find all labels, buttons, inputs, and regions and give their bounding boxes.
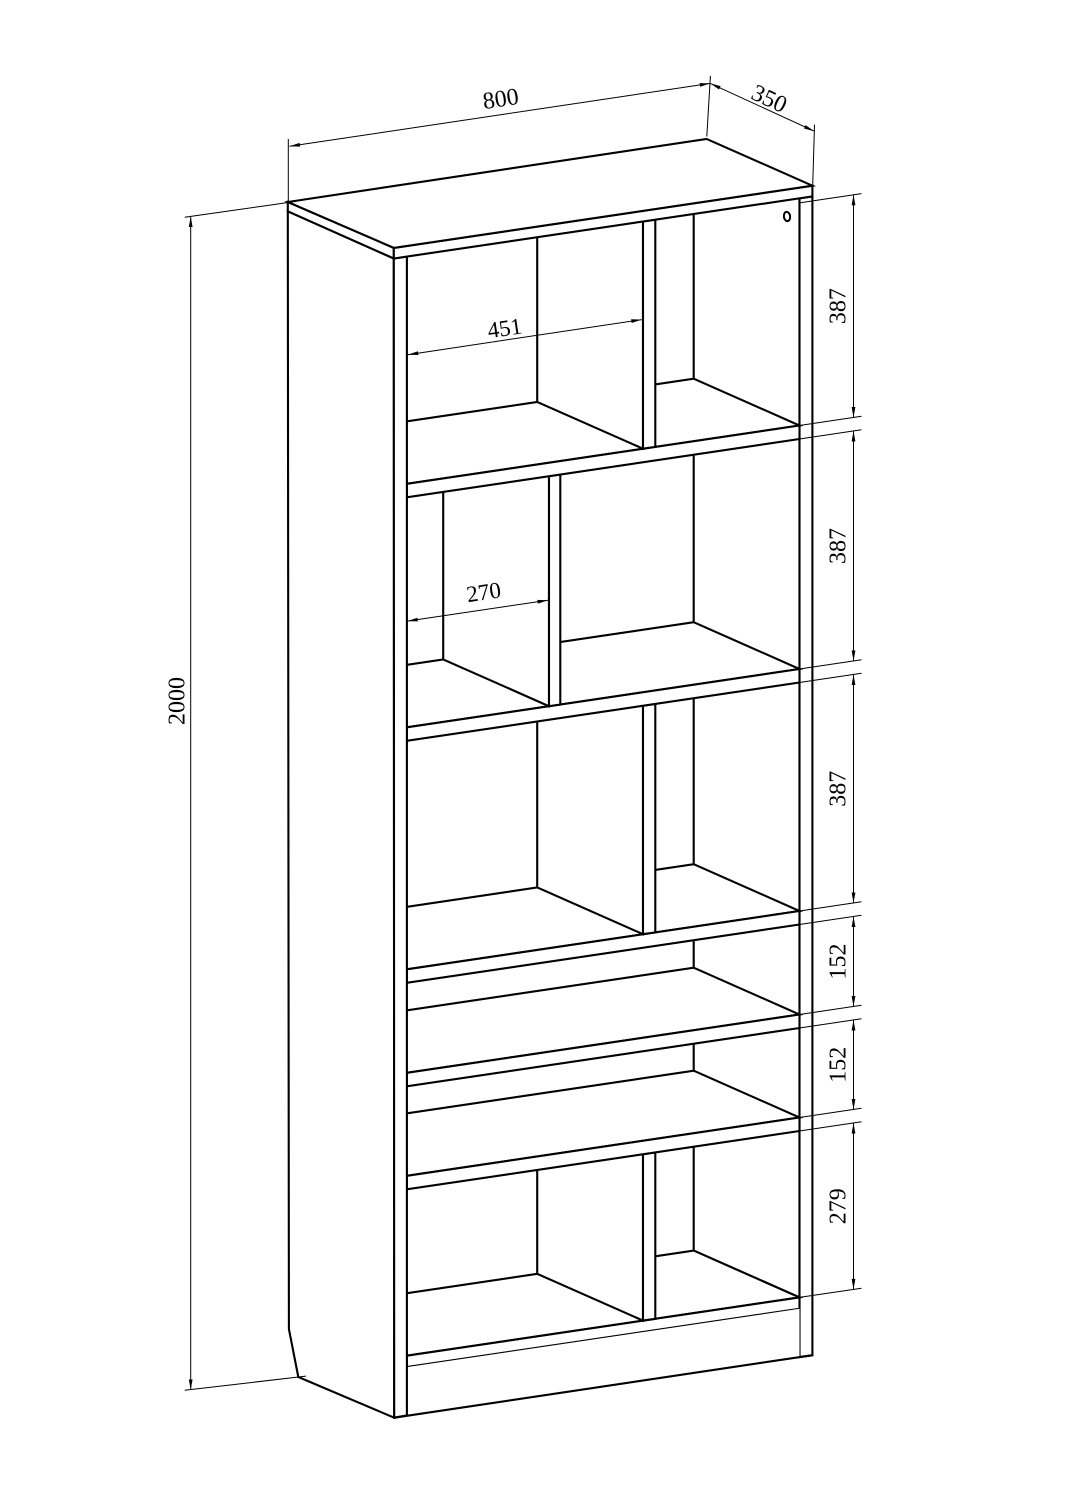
svg-text:451: 451 <box>486 313 524 343</box>
svg-text:270: 270 <box>465 577 503 607</box>
svg-text:800: 800 <box>481 84 520 115</box>
svg-text:2000: 2000 <box>164 677 190 725</box>
svg-text:279: 279 <box>826 1188 852 1224</box>
svg-text:152: 152 <box>826 944 852 980</box>
svg-text:387: 387 <box>826 771 852 807</box>
svg-text:387: 387 <box>826 528 852 564</box>
svg-text:387: 387 <box>826 288 852 324</box>
svg-text:152: 152 <box>826 1047 852 1083</box>
